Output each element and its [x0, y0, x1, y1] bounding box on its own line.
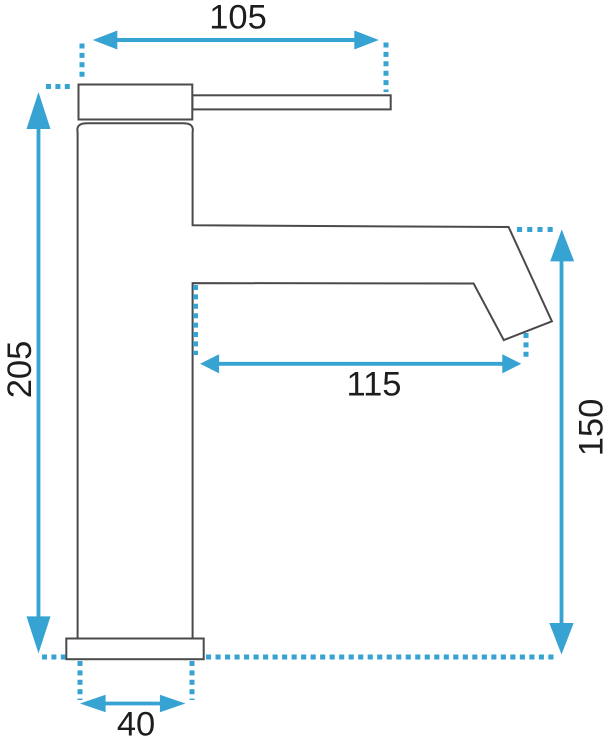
svg-text:115: 115 — [346, 366, 401, 404]
svg-text:150: 150 — [573, 399, 611, 457]
svg-text:105: 105 — [209, 0, 267, 37]
svg-text:40: 40 — [117, 705, 155, 743]
svg-text:205: 205 — [1, 341, 39, 399]
